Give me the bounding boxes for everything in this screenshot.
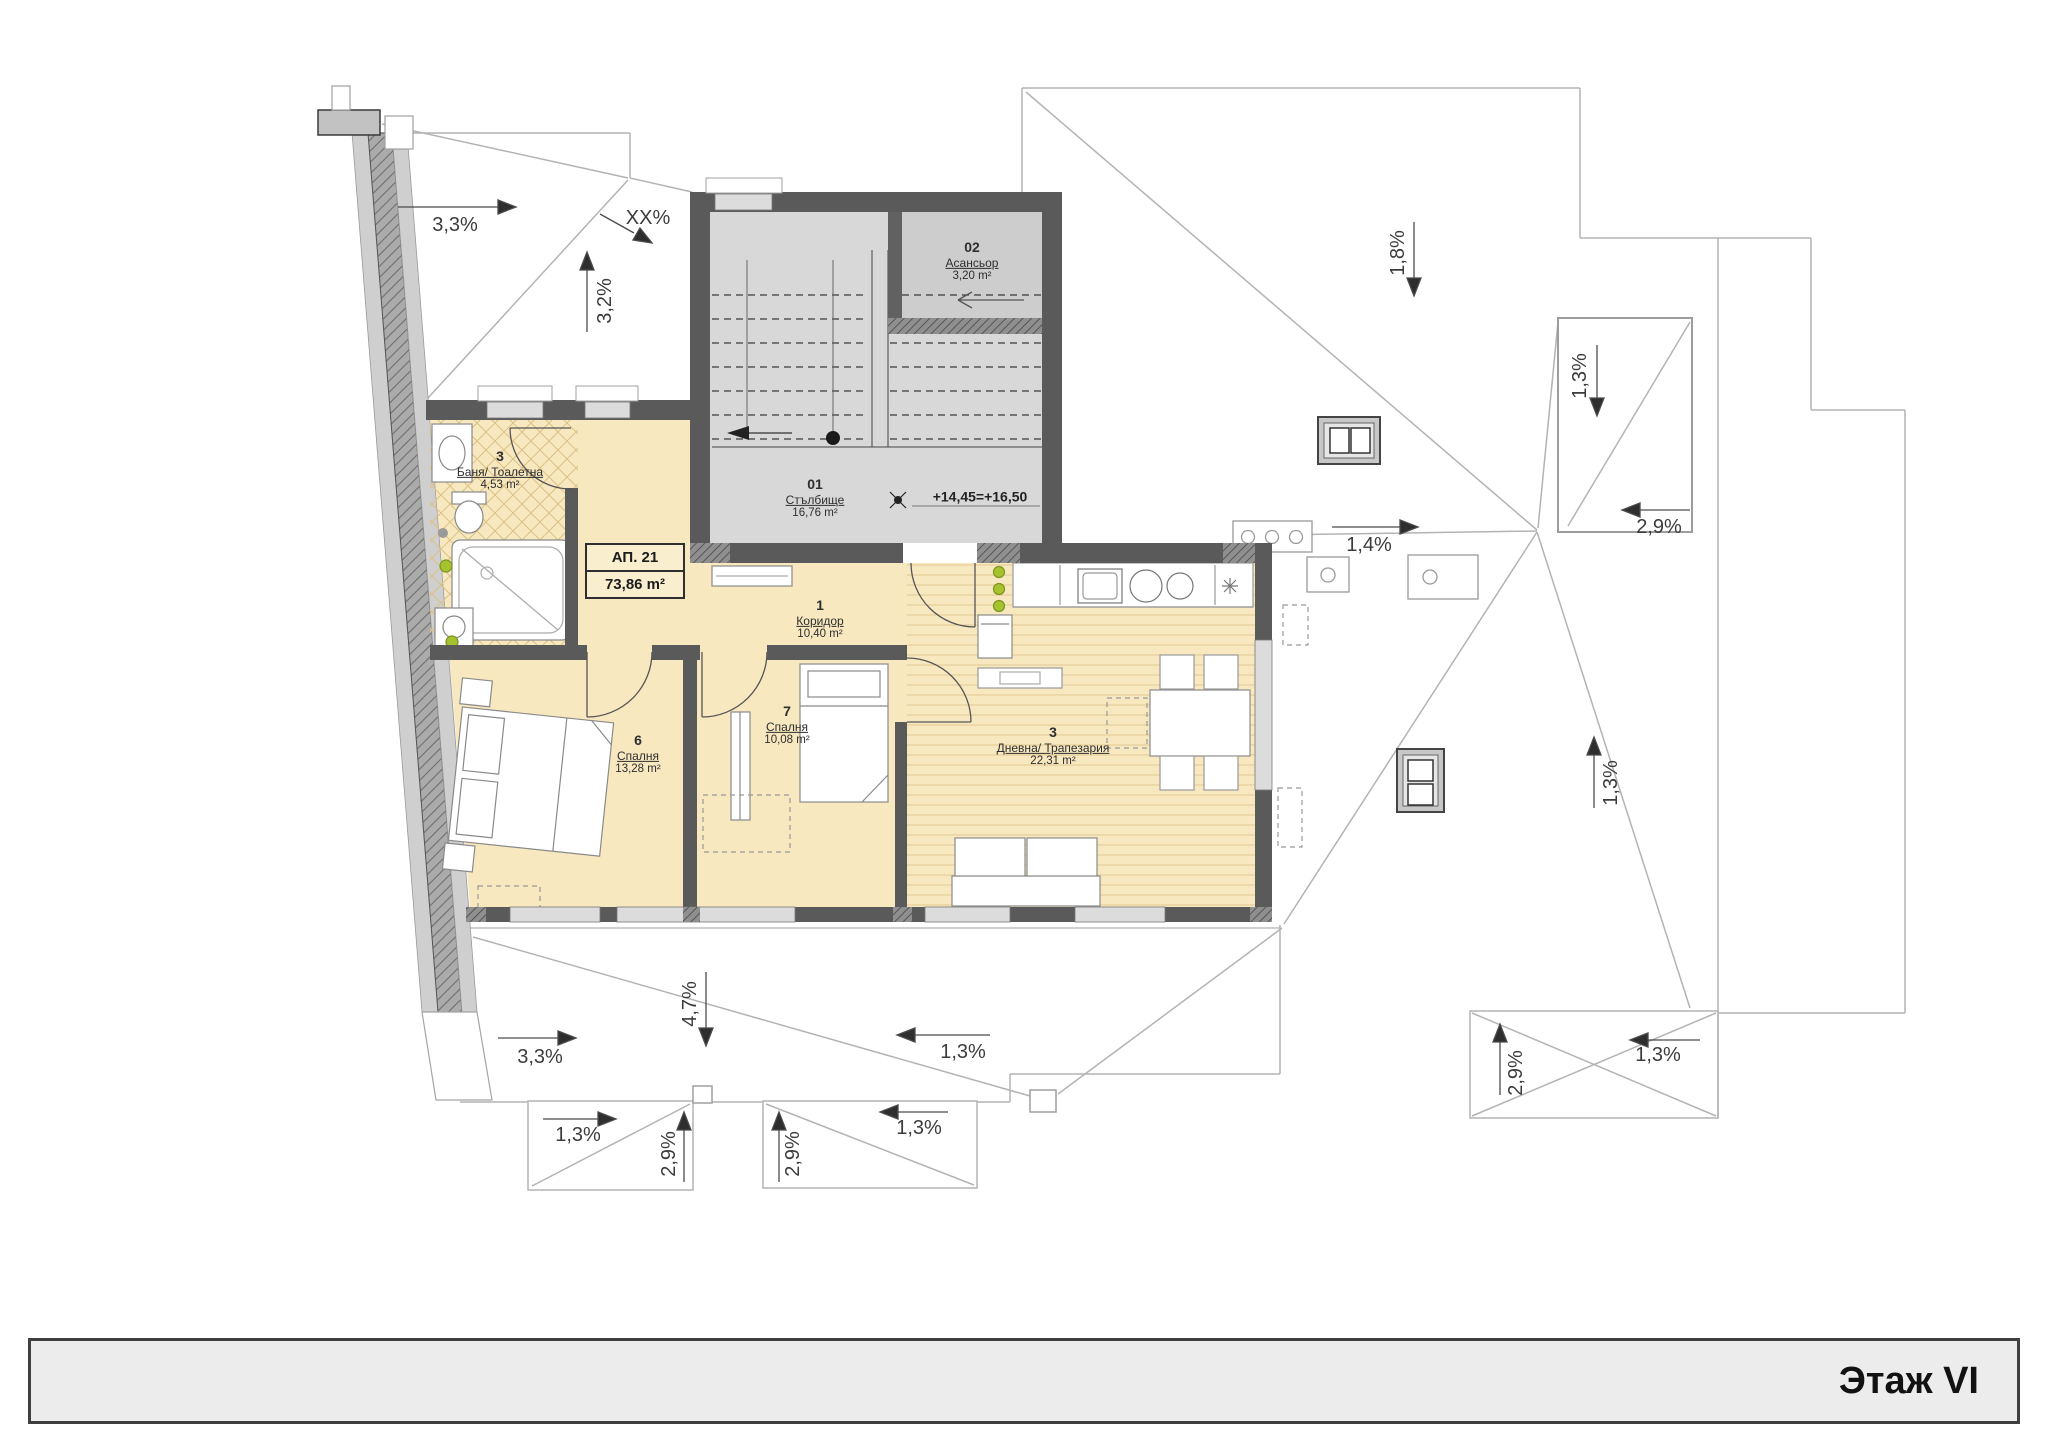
slope-label-bottom-left: 3,3% xyxy=(517,1046,563,1070)
room-label-bedroom-mid: 7 Спалня 10,08 m² xyxy=(764,703,809,747)
slope-label-right-mid: 1,3% xyxy=(1600,760,1624,806)
slope-label-center-right: 1,4% xyxy=(1346,534,1392,558)
room-number: 1 xyxy=(796,597,843,614)
room-area: 10,08 m² xyxy=(764,734,809,748)
room-area: 16,76 m² xyxy=(786,507,845,521)
room-number: 01 xyxy=(786,476,845,493)
floor-plan-page: 3,3% XX% 3,2% 1,8% 1,3% 2,9% 1,4% 1,3% 3… xyxy=(0,0,2048,1450)
slope-label-dormer-tr-down: 1,3% xyxy=(1569,353,1593,399)
apartment-id-box: АП. 21 73,86 m² xyxy=(585,543,685,599)
apartment-area: 73,86 m² xyxy=(587,572,683,597)
slope-label-dormer-tr-left: 2,9% xyxy=(1636,516,1682,540)
slope-label-dormer-br-left: 1,3% xyxy=(1635,1044,1681,1068)
slope-label-dormer-b2-up: 2,9% xyxy=(782,1131,806,1177)
room-label-corridor: 1 Коридор 10,40 m² xyxy=(796,597,843,641)
slope-label-top-left: 3,3% xyxy=(432,214,478,238)
room-name: Стълбище xyxy=(786,492,845,506)
room-number: 3 xyxy=(457,448,543,465)
room-name: Спалня xyxy=(764,719,809,733)
room-number: 02 xyxy=(946,239,999,256)
room-area: 13,28 m² xyxy=(615,763,660,777)
slope-label-dormer-b1-right: 1,3% xyxy=(555,1124,601,1148)
room-name: Коридор xyxy=(796,613,843,627)
room-area: 3,20 m² xyxy=(946,270,999,284)
apartment-id: АП. 21 xyxy=(587,545,683,572)
room-label-bathroom: 3 Баня/ Тоалетна 4,53 m² xyxy=(457,448,543,492)
room-label-bedroom-left: 6 Спалня 13,28 m² xyxy=(615,732,660,776)
room-name: Дневна/ Трапезария xyxy=(997,740,1110,754)
slope-label-top-right: 1,8% xyxy=(1387,230,1411,276)
room-area: 4,53 m² xyxy=(457,479,543,493)
elevation-label: +14,45=+16,50 xyxy=(933,489,1028,506)
room-name: Баня/ Тоалетна xyxy=(457,464,543,478)
room-label-staircase: 01 Стълбище 16,76 m² xyxy=(786,476,845,520)
room-number: 3 xyxy=(997,724,1110,741)
room-area: 22,31 m² xyxy=(997,755,1110,769)
room-label-elevator: 02 Асансьор 3,20 m² xyxy=(946,239,999,283)
slope-label-dormer-b1-up: 2,9% xyxy=(658,1131,682,1177)
room-label-living-dining: 3 Дневна/ Трапезария 22,31 m² xyxy=(997,724,1110,768)
room-area: 10,40 m² xyxy=(796,628,843,642)
slope-label-dormer-br-up: 2,9% xyxy=(1505,1050,1529,1096)
title-bar: Этаж VI xyxy=(28,1338,2020,1424)
slope-label-bottom-center-lower: 1,3% xyxy=(896,1117,942,1141)
skylight-icon xyxy=(1318,417,1444,812)
room-name: Асансьор xyxy=(946,255,999,269)
floor-title: Этаж VI xyxy=(1839,1360,1979,1403)
slope-label-top-left-unknown: XX% xyxy=(626,207,670,231)
room-number: 7 xyxy=(764,703,809,720)
room-number: 6 xyxy=(615,732,660,749)
slope-label-top-left-vert: 3,2% xyxy=(594,278,618,324)
slope-label-bottom-center-upper: 1,3% xyxy=(940,1041,986,1065)
room-name: Спалня xyxy=(615,748,660,762)
slope-label-bottom-center-down: 4,7% xyxy=(679,981,703,1027)
